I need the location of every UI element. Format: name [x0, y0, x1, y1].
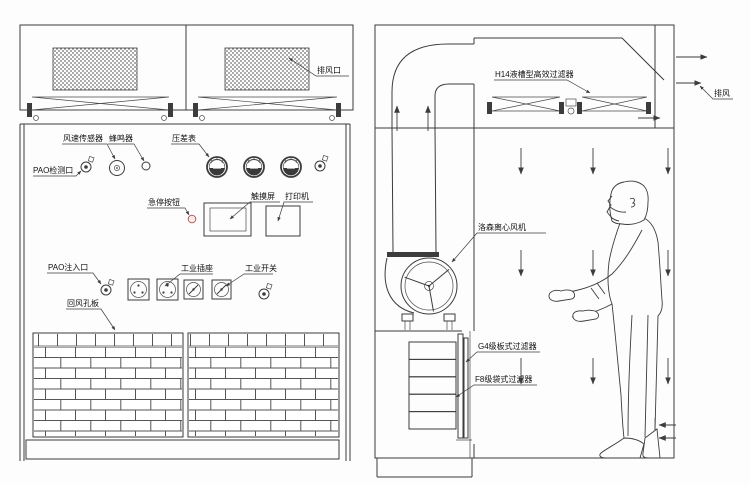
leader-printer: [278, 202, 313, 221]
leader-return-air: [66, 309, 115, 330]
operator-back: [644, 218, 662, 430]
fan-foot: [444, 314, 455, 321]
label-pao-inject-port: PAO注入口: [48, 262, 88, 272]
leader-touch-screen: [230, 202, 280, 219]
label-h14-filter: H14液槽型高效过滤器: [495, 69, 574, 79]
operator-leg-front: [612, 304, 624, 438]
return-air-plate-left: [33, 333, 183, 437]
operator-chest: [608, 223, 620, 304]
f8-frame: [464, 338, 468, 438]
label-g4-filter: G4级板式过滤器: [478, 341, 537, 351]
label-return-air-plate: 回风孔板: [67, 298, 99, 308]
label-industrial-socket: 工业插座: [181, 263, 213, 273]
gauge-1: [207, 157, 227, 177]
label-emergency-stop: 急停按钮: [148, 197, 180, 207]
plenum-outline: [474, 38, 664, 458]
operator-leg-back: [645, 315, 648, 437]
touch-screen-display: [210, 208, 246, 231]
leader-h14: [494, 80, 590, 93]
exhaust-out: 排风: [676, 57, 733, 99]
duct-elbow: [392, 44, 474, 131]
label-exhaust: 排风: [714, 88, 730, 98]
leader-fan: [452, 233, 546, 262]
industrial-switch-1[interactable]: [184, 280, 203, 299]
emergency-stop-button[interactable]: [188, 215, 196, 223]
leader-pressure-gauge: [171, 144, 209, 157]
leader-emergency-stop: [147, 208, 189, 215]
leader-g4: [466, 352, 540, 362]
g4-plate: [458, 334, 463, 438]
label-exhaust-outlet: 排风口: [317, 65, 341, 75]
wind-speed-sensor: [110, 161, 125, 176]
perforated-exhaust-panel-left: [53, 48, 137, 90]
fan-assembly: 洛森离心风机: [375, 128, 546, 331]
filter-clamp-knob: [568, 108, 574, 114]
leader-buzzer: [108, 144, 144, 161]
perforated-exhaust-panel-right: [225, 48, 309, 90]
label-printer: 打印机: [285, 191, 309, 201]
leader-wind-speed: [62, 144, 115, 159]
printer: [266, 206, 300, 236]
return-air-plate-right: [188, 333, 339, 437]
fan-foot: [402, 314, 413, 321]
front-view: 排风口: [20, 25, 353, 461]
label-wind-speed-sensor: 风速传感器: [63, 133, 103, 143]
operator-figure: [549, 181, 662, 458]
pao-test-fitting: [81, 156, 94, 172]
side-outline: [375, 25, 674, 458]
base-plinth: [26, 440, 339, 459]
diagram-canvas: 排风口: [0, 0, 750, 484]
power-row: PAO注入口 工业插座 工业开关: [47, 262, 277, 300]
pressure-gauges: [207, 157, 301, 177]
industrial-socket-2[interactable]: [157, 279, 178, 300]
operator-foot-front: [600, 438, 644, 458]
industrial-switch-2[interactable]: [212, 280, 231, 299]
gauge-2: [244, 157, 264, 177]
label-centrifugal-fan: 洛森离心风机: [478, 222, 526, 232]
pao-inject-fitting: [101, 279, 114, 295]
machine-base: [377, 458, 472, 477]
return-air-area: 回风孔板: [33, 298, 339, 437]
side-view: H14液槽型高效过滤器 排风 洛森离心风机: [375, 25, 733, 477]
prefilter-stack: G4级板式过滤器 F8级袋式过滤器: [409, 331, 540, 458]
label-pao-test-port: PAO检测口: [33, 165, 73, 175]
leader-pao-inject: [47, 273, 101, 284]
label-industrial-switch: 工业开关: [245, 263, 277, 273]
damper-right: [193, 97, 341, 121]
operator-glove-lower: [573, 310, 599, 321]
side-port-fitting: [315, 155, 328, 171]
label-touch-screen: 触摸屏: [251, 191, 275, 201]
laminar-flow-arrows: [521, 148, 668, 384]
exhaust-cabinet: 排风口: [20, 25, 353, 121]
sensor-row: 风速传感器 蜂鸣器 PAO检测口 压差表: [33, 133, 328, 177]
label-f8-filter: F8级袋式过滤器: [475, 374, 532, 384]
operator-leg-inner: [628, 315, 632, 436]
fan-spokes: [405, 269, 449, 311]
label-pressure-gauge: 压差表: [172, 133, 196, 143]
h14-filters: H14液槽型高效过滤器: [487, 69, 660, 118]
operator-glove-upper: [549, 290, 575, 301]
industrial-socket-1[interactable]: [128, 279, 149, 300]
filter-clamp: [566, 99, 576, 106]
hmi-row: 急停按钮 触摸屏 打印机: [147, 191, 313, 236]
gauge-3: [281, 157, 301, 177]
fan-flange: [387, 252, 439, 257]
operator-head: [610, 181, 648, 224]
engineering-drawing: 排风口: [0, 0, 750, 484]
damper-left: [27, 97, 173, 121]
operator-arm-top: [561, 230, 642, 293]
leader-industrial-switch: [226, 274, 273, 286]
label-buzzer: 蜂鸣器: [109, 133, 133, 143]
aux-fitting: [259, 283, 272, 299]
buzzer: [142, 162, 150, 170]
